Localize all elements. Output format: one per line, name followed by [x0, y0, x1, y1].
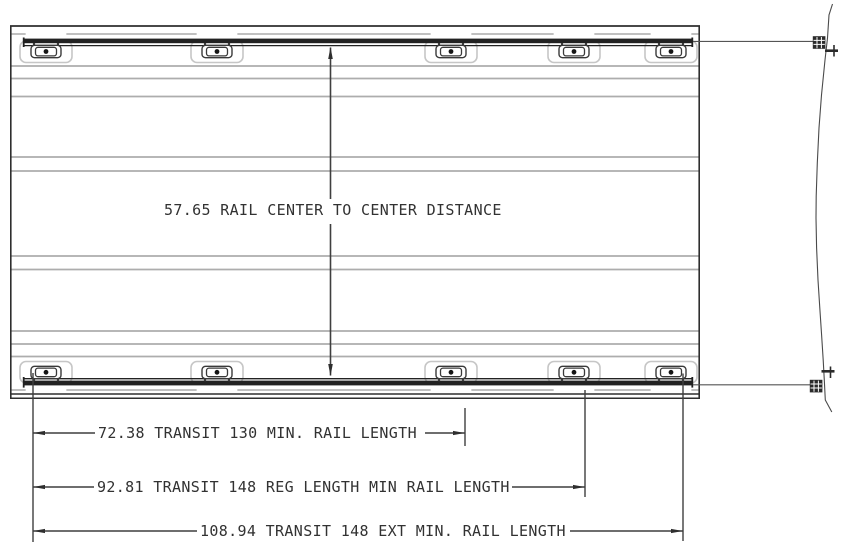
rail-mount-bracket [436, 366, 466, 381]
bracket-bolt-dot [449, 370, 454, 375]
rail-mount-bracket [436, 43, 466, 58]
bracket-bolt-dot [215, 49, 220, 54]
arrow-up-icon [328, 47, 333, 59]
rail-mount-bracket [656, 43, 686, 58]
center-dimension-label: 57.65 RAIL CENTER TO CENTER DISTANCE [164, 203, 502, 217]
rail-mount-bracket [202, 43, 232, 58]
drawing-linework [0, 0, 862, 552]
arrow-left-icon [33, 529, 45, 533]
bracket-bolt-dot [44, 370, 49, 375]
bottom-roof-rail [23, 377, 693, 388]
rail-mount-bracket [559, 43, 589, 58]
transit-130-rail-length-label: 72.38 TRANSIT 130 MIN. RAIL LENGTH [98, 426, 417, 440]
arrow-down-icon [328, 364, 333, 376]
bracket-bolt-dot [215, 370, 220, 375]
bracket-bolt-dot [669, 370, 674, 375]
body-break-line [816, 4, 833, 412]
rail-mount-bracket [559, 366, 589, 381]
bracket-bolt-dot [572, 49, 577, 54]
body-fastener-bolt-bottom [810, 367, 835, 393]
rail-mount-bracket [31, 43, 61, 58]
transit-148-reg-rail-length-label: 92.81 TRANSIT 148 REG LENGTH MIN RAIL LE… [97, 480, 510, 494]
arrow-right-icon [453, 431, 465, 435]
arrow-right-icon [671, 529, 683, 533]
arrow-right-icon [573, 485, 585, 489]
technical-drawing: 57.65 RAIL CENTER TO CENTER DISTANCE 72.… [0, 0, 862, 552]
arrow-left-icon [33, 485, 45, 489]
rail-mount-bracket [202, 366, 232, 381]
arrow-left-icon [33, 431, 45, 435]
bracket-bolt-dot [449, 49, 454, 54]
transit-148-ext-rail-length-label: 108.94 TRANSIT 148 EXT MIN. RAIL LENGTH [200, 524, 566, 538]
bracket-bolt-dot [669, 49, 674, 54]
bracket-bolt-dot [44, 49, 49, 54]
top-roof-rail [23, 38, 693, 48]
rail-to-body-leader-lines [693, 41, 813, 384]
bracket-bolt-dot [572, 370, 577, 375]
rail-mount-bracket [31, 366, 61, 381]
rail-mount-bracket [656, 366, 686, 381]
